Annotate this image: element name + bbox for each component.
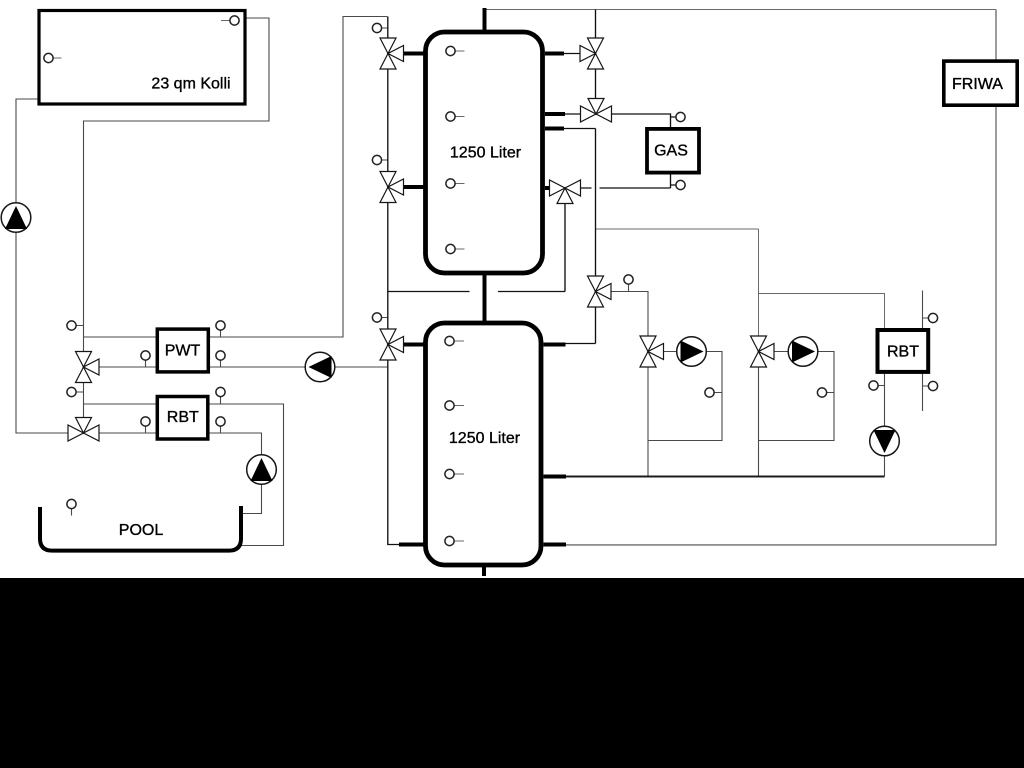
svg-text:GAS: GAS [654,143,688,160]
svg-text:RBT: RBT [167,409,199,426]
svg-text:1250 Liter: 1250 Liter [449,430,521,447]
svg-text:23 qm Kolli: 23 qm Kolli [151,76,230,93]
svg-text:RBT: RBT [887,344,919,361]
svg-text:PWT: PWT [165,343,201,360]
svg-text:FRIWA: FRIWA [952,76,1003,93]
svg-text:POOL: POOL [119,522,164,539]
svg-text:1250 Liter: 1250 Liter [450,145,522,162]
